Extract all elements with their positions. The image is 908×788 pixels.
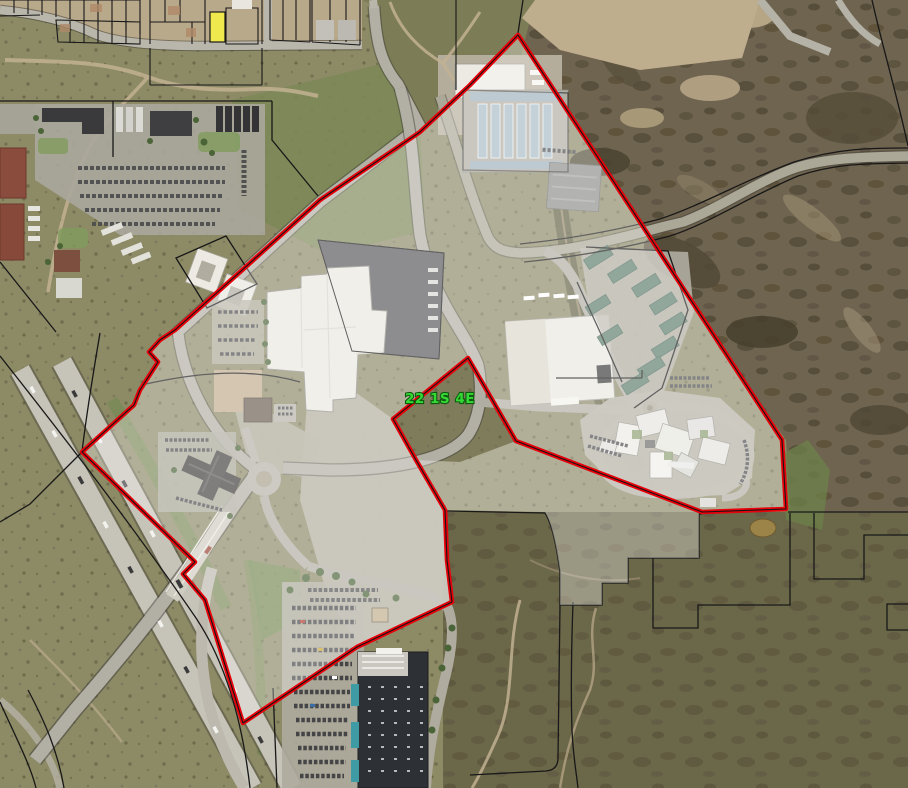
- store-entrance-canopies: [351, 684, 359, 782]
- map-viewport[interactable]: 22 1S 4E: [0, 0, 908, 788]
- highlighted-lot: [210, 12, 225, 42]
- townhome-rows: [216, 106, 259, 132]
- section-label: 22 1S 4E: [405, 391, 475, 407]
- dark-roof-building: [150, 111, 192, 136]
- brown-building: [54, 250, 80, 272]
- subdivision-white-building: [232, 0, 252, 9]
- store-front-canopy: [376, 648, 402, 654]
- retention-pond: [750, 519, 776, 537]
- white-building-sw: [56, 278, 82, 298]
- brick-apartments: [0, 148, 26, 198]
